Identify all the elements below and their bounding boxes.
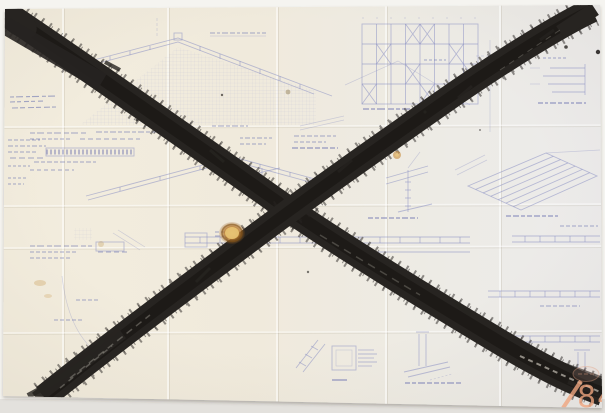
gray-speck (286, 90, 291, 95)
blueprint-artwork-canvas: 84 (0, 0, 605, 413)
artwork-photo: 84 (0, 0, 605, 413)
